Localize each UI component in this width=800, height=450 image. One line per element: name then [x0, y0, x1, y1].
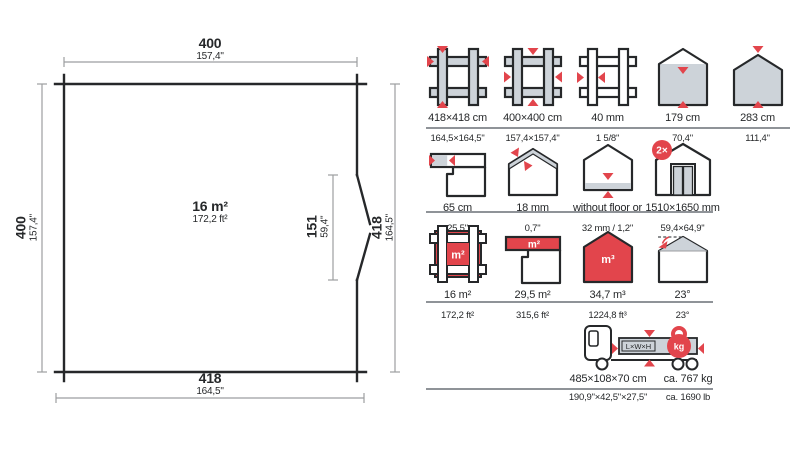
plan-area-label: 16 m² 172,2 ft² [150, 199, 270, 226]
spec-row-2: 65 cm 25,5" 18 mm 0,7" [420, 140, 720, 234]
corner-joint-outer-dims-icon [427, 42, 489, 108]
dimension-value-inch: 59,4" [320, 172, 332, 282]
spec-door-size: 2× 1510×1650 mm 59,4×64,9" [645, 140, 720, 234]
spec-roof-overhang: 65 cm 25,5" [420, 140, 495, 234]
spec-volume: m³ 34,7 m³ 1224,8 ft³ [570, 228, 645, 321]
dimension-value-cm: 400 [13, 173, 28, 283]
spec-value-metric: 34,7 m³ [590, 289, 626, 301]
spec-floor-board: without floor or 32 mm / 1,2" [570, 140, 645, 234]
dimension-value-inch: 164,5" [150, 386, 270, 398]
wall-height-icon [655, 42, 711, 108]
load-dims-label: L×W×H [626, 342, 651, 351]
truck-window [589, 331, 598, 346]
spec-value-metric: 283 cm [740, 112, 775, 124]
corner-joint-inner-dims-icon [502, 42, 564, 108]
plan-bottom-dimension: 418 164,5" [150, 371, 270, 398]
truck-wheel [597, 359, 608, 370]
spec-row-3: m² 16 m² 172,2 ft² m² 29,5 m² 315,6 ft² [420, 228, 720, 321]
dimension-lines [37, 57, 400, 403]
spec-value-metric: 29,5 m² [515, 289, 551, 301]
volume-unit-label: m³ [601, 254, 615, 266]
dimension-value-cm: 418 [369, 173, 384, 283]
spec-value-metric: 418×418 cm [428, 112, 487, 124]
double-door-icon: 2× [650, 140, 716, 198]
kettlebell-kg-label: kg [674, 342, 685, 352]
spec-value-imperial: 111,4" [745, 133, 770, 144]
wall-thickness-icon [577, 42, 639, 108]
plan-left-dimension: 400 157,4" [13, 173, 40, 283]
spec-divider-row4 [426, 388, 713, 390]
truck-wheel [687, 359, 698, 370]
shipping-weight-metric: ca. 767 kg [642, 373, 734, 385]
roof-area-icon: m² [504, 228, 562, 285]
spec-value-metric: 400×400 cm [503, 112, 562, 124]
spec-roof-pitch: 23° 23° [645, 228, 720, 321]
shipping-weight-imperial: ca. 1690 lb [642, 392, 734, 403]
roof-overhang-icon [429, 140, 487, 198]
spec-divider-row2 [426, 211, 713, 213]
floor-board-icon [580, 140, 636, 198]
dimension-value-cm: 151 [304, 172, 319, 282]
spec-divider-row3 [426, 301, 713, 303]
volume-icon: m³ [580, 228, 636, 285]
spec-value-imperial: 172,2 ft² [441, 310, 474, 321]
door-leaf-bottom [357, 234, 370, 280]
roof-board-thickness-icon [505, 140, 561, 198]
floor-area-icon: m² [427, 228, 489, 285]
dimension-value-inch: 164,5" [385, 173, 397, 283]
plan-door-dimension: 151 59,4" [304, 172, 331, 282]
spec-roof-area: m² 29,5 m² 315,6 ft² [495, 228, 570, 321]
spec-floor-area: m² 16 m² 172,2 ft² [420, 228, 495, 321]
roof-pitch-icon [655, 228, 711, 285]
spec-value-metric: 16 m² [444, 289, 471, 301]
area-value-imperial: 172,2 ft² [150, 214, 270, 226]
spec-divider-row1 [426, 127, 790, 129]
dimension-value-cm: 400 [150, 36, 270, 51]
spec-value-metric: 23° [674, 289, 690, 301]
dimension-value-inch: 157,4" [150, 51, 270, 63]
truck-icon: L×W×H kg [575, 318, 711, 374]
spec-value-metric: 179 cm [665, 112, 700, 124]
plan-top-dimension: 400 157,4" [150, 36, 270, 63]
area-value-metric: 16 m² [150, 199, 270, 214]
dimension-value-inch: 157,4" [29, 173, 41, 283]
truck-wheel [673, 359, 684, 370]
ridge-height-icon [730, 42, 786, 108]
plan-right-dimension: 418 164,5" [369, 173, 396, 283]
spec-roof-board: 18 mm 0,7" [495, 140, 570, 234]
spec-value-metric: 40 mm [591, 112, 624, 124]
dimension-value-cm: 418 [150, 371, 270, 386]
floor-area-unit-label: m² [451, 250, 465, 262]
spec-value-imperial: 315,6 ft² [516, 310, 549, 321]
spec-sheet: 400 157,4" 418 164,5" 400 157,4" 418 164… [0, 0, 800, 450]
roof-area-unit-label: m² [527, 240, 540, 251]
door-count-badge-label: 2× [656, 146, 668, 157]
